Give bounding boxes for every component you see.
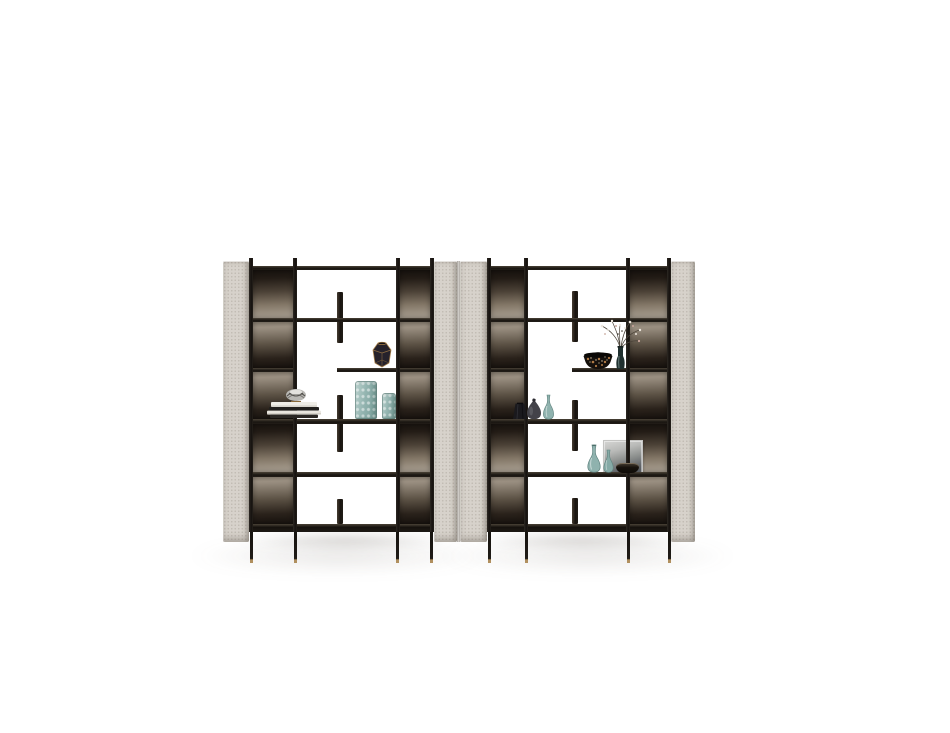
left-module-side-panel-right (434, 261, 457, 542)
frame-post (667, 258, 671, 532)
back-panel (491, 476, 524, 524)
right-module-side-panel-right (671, 261, 695, 542)
teal-gourd-vase-slim (602, 449, 615, 473)
back-panel (253, 270, 293, 318)
frame-post (249, 258, 253, 532)
divider-fin (337, 499, 343, 524)
bottom-shelf (487, 524, 671, 532)
frame-post (396, 258, 400, 532)
shelf (487, 472, 671, 477)
product-image-scene (0, 0, 950, 733)
shelf (249, 318, 434, 322)
leg (294, 532, 297, 563)
leg (525, 532, 528, 563)
half-shelf (337, 368, 434, 372)
back-panel (253, 423, 293, 472)
right-module-side-panel-left (460, 261, 487, 542)
book-stack (266, 401, 322, 419)
leg (396, 532, 399, 563)
back-panel (491, 423, 524, 472)
divider-fin (572, 498, 578, 524)
teal-hobnail-vase-short (382, 393, 396, 419)
back-panel (400, 322, 430, 368)
small-dark-bowl (616, 463, 639, 473)
teal-hobnail-vase-tall (355, 381, 377, 419)
faceted-vase (371, 341, 393, 368)
teal-gourd-vase-small (542, 394, 555, 420)
shelf (249, 266, 434, 270)
divider-fin (572, 291, 578, 342)
back-panel (630, 476, 667, 524)
leg (250, 532, 253, 563)
leopard-pattern-bowl (582, 350, 614, 370)
leg (488, 532, 491, 563)
shelf (249, 419, 434, 424)
floor-shadow-left-contact (237, 533, 455, 548)
back-panel (630, 270, 667, 318)
divider-fin (572, 400, 578, 451)
back-panel (400, 423, 430, 472)
shelf (487, 266, 671, 270)
back-panel (253, 476, 293, 524)
back-panel (630, 372, 667, 419)
shelf (249, 472, 434, 477)
bottom-shelf (249, 524, 434, 532)
leg (430, 532, 433, 563)
frame-post (430, 258, 434, 532)
frame-post (626, 258, 630, 532)
half-shelf (491, 368, 524, 372)
back-panel (400, 372, 430, 419)
floor-shadow-right-contact (474, 533, 692, 548)
back-panel (491, 270, 524, 318)
frame-post (524, 258, 528, 532)
smoke-gray-round-vase (525, 398, 543, 420)
back-panel (400, 476, 430, 524)
back-panel (400, 270, 430, 318)
half-shelf (253, 368, 293, 372)
frame-post (487, 258, 491, 532)
back-panel (253, 322, 293, 368)
back-panel (491, 322, 524, 368)
left-module-side-panel-left (223, 261, 249, 542)
leg (627, 532, 630, 563)
teal-gourd-vase-tall (586, 444, 602, 473)
